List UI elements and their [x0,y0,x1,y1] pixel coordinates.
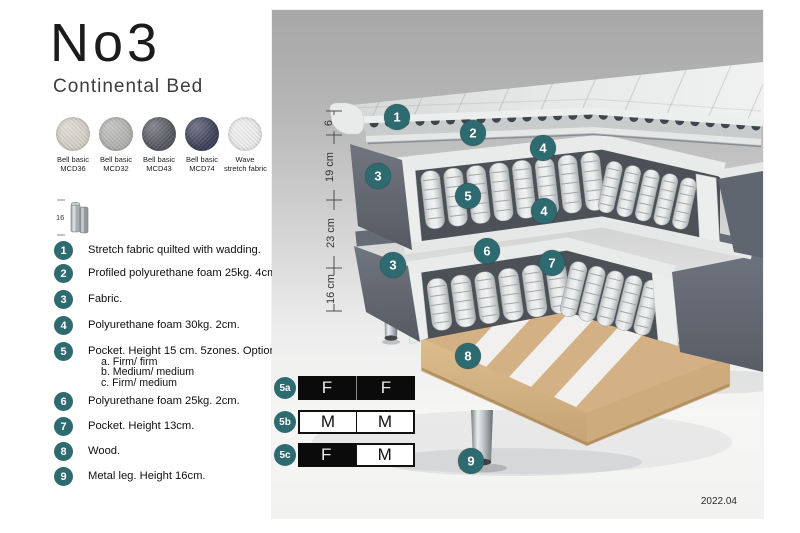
fabric-swatch-icon [56,117,90,151]
product-sheet: No3 Continental Bed Bell basicMCD36 Bell… [0,0,800,533]
option-c: c. Firm/ medium [101,378,194,388]
legend-item-7: 7 Pocket. Height 13cm. [54,417,194,436]
legend-text: Profiled polyurethane foam 25kg. 4cm. [88,264,280,283]
callout-badge-9: 9 [458,448,484,474]
measure-leg: 16 cm [325,274,337,304]
svg-text:8: 8 [464,349,471,364]
leg-height-value: 16 [56,213,64,222]
bed-cutaway-illustration: 6 19 cm 23 cm 16 cm 1 2 4 3 5 4 6 7 3 8 … [272,10,763,518]
fabric-swatch-mcd43: Bell basicMCD43 [138,117,180,173]
legend-number-badge: 6 [54,392,73,411]
product-subtitle: Continental Bed [53,76,203,98]
callout-badge-7: 7 [539,250,565,276]
measure-base: 23 cm [325,218,337,248]
fabric-swatch-icon [228,117,262,151]
legend-number-badge: 8 [54,442,73,461]
legend-number-badge: 4 [54,316,73,335]
svg-text:4: 4 [539,141,547,156]
measure-mattress: 19 cm [324,152,336,182]
legend-text: Pocket. Height 13cm. [88,417,194,436]
firmness-cell: M [356,412,413,432]
swatch-label: Bell basic [57,155,89,164]
measurement-labels: 6 19 cm 23 cm 16 cm [323,120,337,304]
product-diagram-panel: 6 19 cm 23 cm 16 cm 1 2 4 3 5 4 6 7 3 8 … [272,10,763,518]
swatch-label: Bell basic [100,155,132,164]
callout-badge-6: 6 [474,238,500,264]
legend-item-4: 4 Polyurethane foam 30kg. 2cm. [54,316,240,335]
fabric-swatch-icon [185,117,219,151]
svg-text:6: 6 [483,244,490,259]
version-label: 2022.04 [701,496,737,507]
firmness-cell: F [298,376,356,400]
firmness-row-5b: M M [298,410,415,434]
legend-item-8: 8 Wood. [54,442,120,461]
legend-text: Metal leg. Height 16cm. [88,467,206,486]
firmness-cell: F [356,376,415,400]
legend-number-badge: 9 [54,467,73,486]
legend-item-3: 3 Fabric. [54,290,122,309]
fabric-swatch-mcd36: Bell basicMCD36 [52,117,94,173]
callout-badge-3b: 3 [380,252,406,278]
callout-badge-2: 2 [460,120,486,146]
leg-height-icon: 16 [50,194,102,247]
legend-number-badge: 5 [54,342,73,361]
firmness-cell: F [298,443,355,467]
firmness-cell: M [355,443,416,467]
svg-text:9: 9 [467,454,474,469]
callout-badge-5: 5 [455,183,481,209]
firmness-badge-5b: 5b [274,411,296,433]
firmness-cell: M [300,412,356,432]
legend-text: Stretch fabric quilted with wadding. [88,241,261,260]
legend-number-badge: 2 [54,264,73,283]
svg-text:3: 3 [389,258,396,273]
firmness-row-5a: F F [298,376,415,400]
svg-text:7: 7 [548,256,555,271]
svg-text:2: 2 [469,126,476,141]
legend-number-badge: 3 [54,290,73,309]
legend-item-1: 1 Stretch fabric quilted with wadding. [54,241,261,260]
svg-text:5: 5 [464,189,471,204]
swatch-label: Wave [236,155,255,164]
fabric-swatch-icon [142,117,176,151]
callout-badge-8: 8 [455,343,481,369]
metal-leg-glyph [71,202,88,233]
callout-badge-4a: 4 [530,135,556,161]
callout-badge-1: 1 [384,104,410,130]
legend-number-badge: 7 [54,417,73,436]
swatch-label: Bell basic [186,155,218,164]
svg-text:1: 1 [393,110,400,125]
svg-text:4: 4 [540,204,548,219]
legend-item-6: 6 Polyurethane foam 25kg. 2cm. [54,392,240,411]
firmness-badge-5c: 5c [274,444,296,466]
firmness-row-5c: F M [298,443,415,467]
swatch-label: Bell basic [143,155,175,164]
svg-text:3: 3 [374,169,381,184]
firmness-badge-5a: 5a [274,377,296,399]
callout-badge-3a: 3 [365,163,391,189]
legend-item-9: 9 Metal leg. Height 16cm. [54,467,206,486]
fabric-swatch-mcd74: Bell basicMCD74 [181,117,223,173]
fabric-swatch-wave: Wavestretch fabric [224,117,266,173]
legend-item-5-options: a. Firm/ firm b. Medium/ medium c. Firm/… [101,357,194,388]
legend-number-badge: 1 [54,241,73,260]
legend-text: Fabric. [88,290,122,309]
legend-text: Polyurethane foam 30kg. 2cm. [88,316,240,335]
fabric-swatch-row: Bell basicMCD36 Bell basicMCD32 Bell bas… [52,117,266,173]
legend-text: Polyurethane foam 25kg. 2cm. [88,392,240,411]
fabric-swatch-mcd32: Bell basicMCD32 [95,117,137,173]
product-title: No3 [50,12,161,74]
measure-topper: 6 [323,120,335,126]
legend-text: Wood. [88,442,120,461]
legend-item-2: 2 Profiled polyurethane foam 25kg. 4cm. [54,264,280,283]
callout-badge-4b: 4 [531,198,557,224]
fabric-swatch-icon [99,117,133,151]
